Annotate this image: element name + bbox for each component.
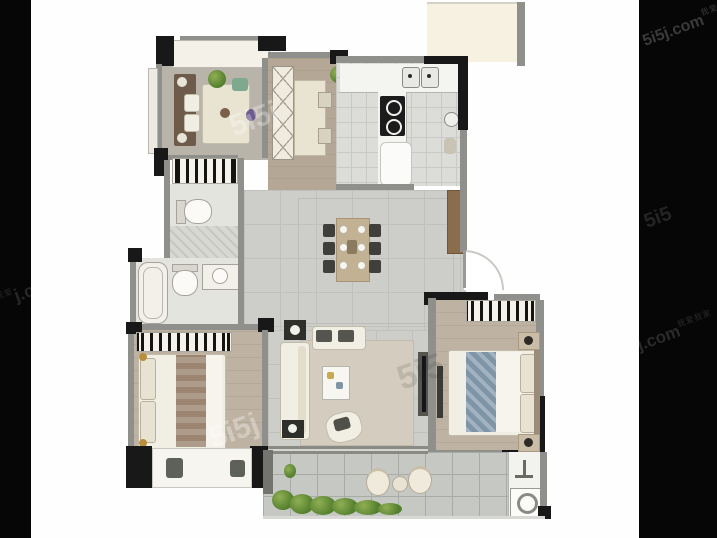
- kitchen-counter-top: [340, 64, 462, 93]
- watermark-cn: 我爱我家: [700, 0, 717, 17]
- burner-icon: [386, 100, 402, 116]
- watermark-latin: 5i5j.com: [640, 12, 706, 50]
- wall-pier: [258, 36, 286, 51]
- island-counter: [380, 142, 412, 186]
- plate-icon: [357, 225, 366, 234]
- watermark-right-low: 5j.com我爱我家: [639, 307, 717, 358]
- pillow: [140, 358, 156, 400]
- small-appliance-icon: [444, 138, 456, 154]
- stool: [318, 92, 332, 108]
- floor-lamp-icon: [290, 325, 300, 335]
- wall: [517, 2, 525, 66]
- basin-icon: [212, 268, 228, 284]
- toilet: [172, 270, 198, 296]
- planting-strip: [378, 503, 402, 515]
- headboard: [534, 350, 540, 434]
- balcony-table: [392, 476, 408, 492]
- dining-chair: [323, 260, 335, 273]
- balcony-edge-line: [263, 516, 545, 519]
- drain-icon: [408, 74, 412, 78]
- chair: [184, 114, 200, 132]
- floor-lamp-icon: [288, 424, 297, 433]
- wall: [128, 330, 134, 448]
- watermark-right-top: 5i5j.com我爱我家: [639, 0, 717, 51]
- dining-chair: [323, 242, 335, 255]
- sliding-door-glass: [268, 449, 428, 451]
- washer-drum-icon: [517, 493, 538, 514]
- entry-door-arc: [464, 250, 504, 290]
- wall-pier: [126, 446, 152, 488]
- watermark-latin-fragment: 5i5: [641, 202, 675, 232]
- wall-pier: [263, 450, 273, 494]
- wall: [458, 64, 468, 130]
- bed-sheet: [496, 352, 522, 432]
- duvet: [466, 352, 496, 432]
- wall: [336, 56, 428, 63]
- laundry-sink-icon: [515, 475, 533, 478]
- kettle-icon: [444, 112, 459, 127]
- wall: [460, 190, 467, 252]
- chair: [184, 94, 200, 112]
- table-lamp-icon: [177, 133, 187, 143]
- watermark-latin-fragment: 5j.com: [639, 321, 683, 357]
- balcony-chair: [366, 468, 390, 496]
- plate-icon: [357, 243, 366, 252]
- side-window: [148, 68, 158, 154]
- wall: [262, 330, 268, 452]
- dining-chair: [369, 260, 381, 273]
- bed-runner: [176, 355, 206, 447]
- letterbox-right: 5i5j.com我爱我家 5i5 5j.com我爱我家: [639, 0, 717, 538]
- toilet: [184, 199, 212, 224]
- watermark-latin-fragment: j.c: [11, 280, 31, 306]
- wardrobe: [466, 300, 536, 322]
- watermark-fragment-left: 我爱j.c: [0, 279, 31, 313]
- bathroom-vanity: [172, 158, 238, 184]
- bench-cushion: [316, 330, 332, 342]
- wall: [268, 52, 336, 58]
- lamp-icon: [524, 438, 533, 447]
- floor-plan-photo: 我爱j.c 5i5j.com我爱我家 5i5 5j.com我爱我家: [0, 0, 717, 538]
- stool: [318, 128, 332, 144]
- balcony-chair: [408, 466, 432, 494]
- dining-chair: [369, 224, 381, 237]
- plant-icon: [208, 70, 226, 88]
- wall: [130, 258, 136, 326]
- utility-platform: [427, 2, 519, 62]
- bathtub-inner: [143, 267, 163, 319]
- stool: [230, 460, 245, 477]
- bench-cushion: [338, 330, 354, 342]
- entry-door-leaf: [463, 250, 466, 288]
- dining-chair: [323, 224, 335, 237]
- plate-icon: [357, 261, 366, 270]
- wall-pier: [128, 248, 142, 262]
- centerpiece-icon: [347, 240, 357, 254]
- bay-window-top: [172, 40, 270, 68]
- shower-stall: [170, 226, 240, 260]
- plate-icon: [339, 225, 348, 234]
- lamp-icon: [524, 336, 533, 345]
- table-item-icon: [327, 372, 334, 379]
- drain-icon: [427, 74, 431, 78]
- wardrobe: [136, 332, 232, 352]
- decor-item: [232, 78, 248, 91]
- table-lamp-icon: [177, 77, 187, 87]
- dining-chair: [369, 242, 381, 255]
- plant-icon: [284, 464, 296, 478]
- watermark-cn: 我爱我家: [676, 308, 713, 329]
- wall: [133, 324, 263, 330]
- watermark-right-mid: 5i5: [641, 202, 675, 233]
- wall: [540, 452, 547, 514]
- table-item-icon: [336, 382, 343, 389]
- letterbox-left: 我爱j.c: [0, 0, 31, 538]
- burner-icon: [386, 119, 402, 135]
- pillow: [140, 401, 156, 443]
- lamp-icon: [139, 353, 147, 361]
- laundry-sink-icon: [523, 460, 526, 476]
- plate-icon: [339, 261, 348, 270]
- wall: [180, 36, 258, 40]
- wall-pier: [156, 36, 174, 66]
- wall: [460, 130, 467, 190]
- stool: [166, 458, 183, 478]
